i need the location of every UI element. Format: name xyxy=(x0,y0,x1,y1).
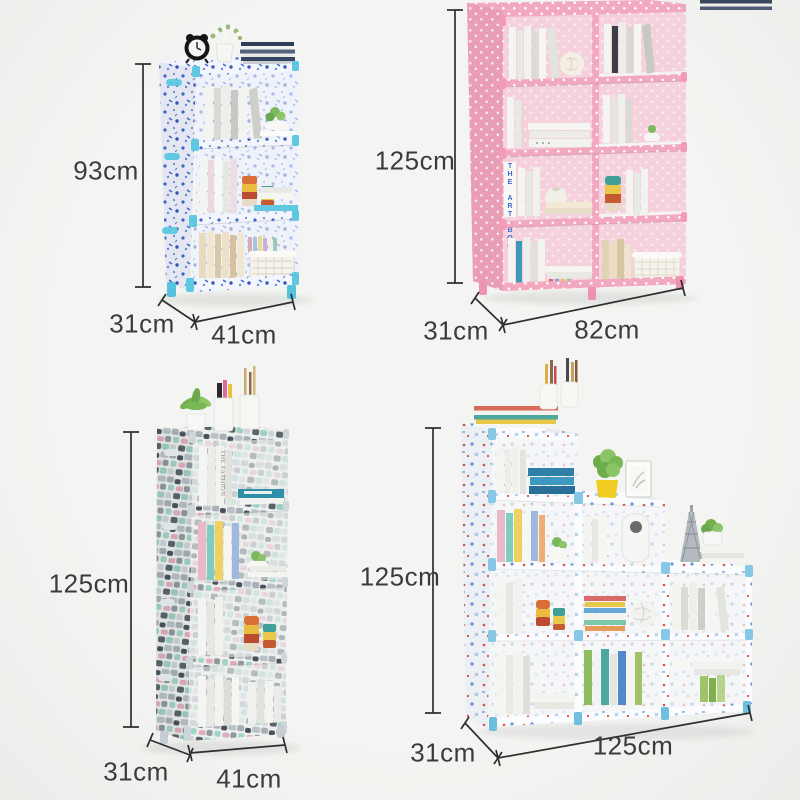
bookshelf-staircase xyxy=(459,358,755,740)
pen-cups xyxy=(540,358,578,409)
succulent-plant xyxy=(178,387,212,430)
eiffel-tower-decor xyxy=(680,505,703,562)
staircase-shelf-depth-label: 31cm xyxy=(410,738,476,769)
grey-shelf-depth-label: 31cm xyxy=(103,757,169,788)
pink-shelf-height-label: 125cm xyxy=(375,146,456,177)
succulent-plant xyxy=(701,519,723,545)
rose-ball-decor xyxy=(560,52,584,76)
stacked-books xyxy=(240,42,295,64)
pen-holder xyxy=(214,380,233,431)
pink-shelf-depth-label: 31cm xyxy=(423,316,489,347)
flower-vase xyxy=(211,25,243,63)
staircase-shelf-width-label: 125cm xyxy=(593,731,674,762)
book-stack xyxy=(254,187,298,211)
brush-holder xyxy=(240,366,259,429)
bookshelf-3cube-blue xyxy=(157,25,313,308)
blue-shelf-height-label: 93cm xyxy=(73,156,139,187)
magazines xyxy=(200,157,237,213)
books-row xyxy=(626,169,648,217)
book-spine-text: THE FASHION xyxy=(219,450,226,496)
bookshelf-8cube-pink: THE ART BOOK xyxy=(467,0,772,305)
pink-shelf-width-label: 82cm xyxy=(574,315,640,346)
bookshelf-4cube-grey: THE FASHION xyxy=(142,366,302,755)
grey-shelf-height-label: 125cm xyxy=(49,569,130,600)
blue-shelf-width-label: 41cm xyxy=(211,320,277,351)
staircase-shelf-height-label: 125cm xyxy=(360,562,441,593)
striped-vase xyxy=(605,176,621,211)
picture-frame xyxy=(626,461,651,497)
scene: THE ART BOOK xyxy=(0,0,800,800)
bookshelf-dimension-collage: THE ART BOOK xyxy=(0,0,800,800)
grey-shelf-width-label: 41cm xyxy=(216,764,282,795)
stacked-books xyxy=(700,547,745,564)
alarm-clock xyxy=(185,34,210,63)
blue-shelf-depth-label: 31cm xyxy=(109,309,175,340)
stacked-books xyxy=(700,0,772,10)
